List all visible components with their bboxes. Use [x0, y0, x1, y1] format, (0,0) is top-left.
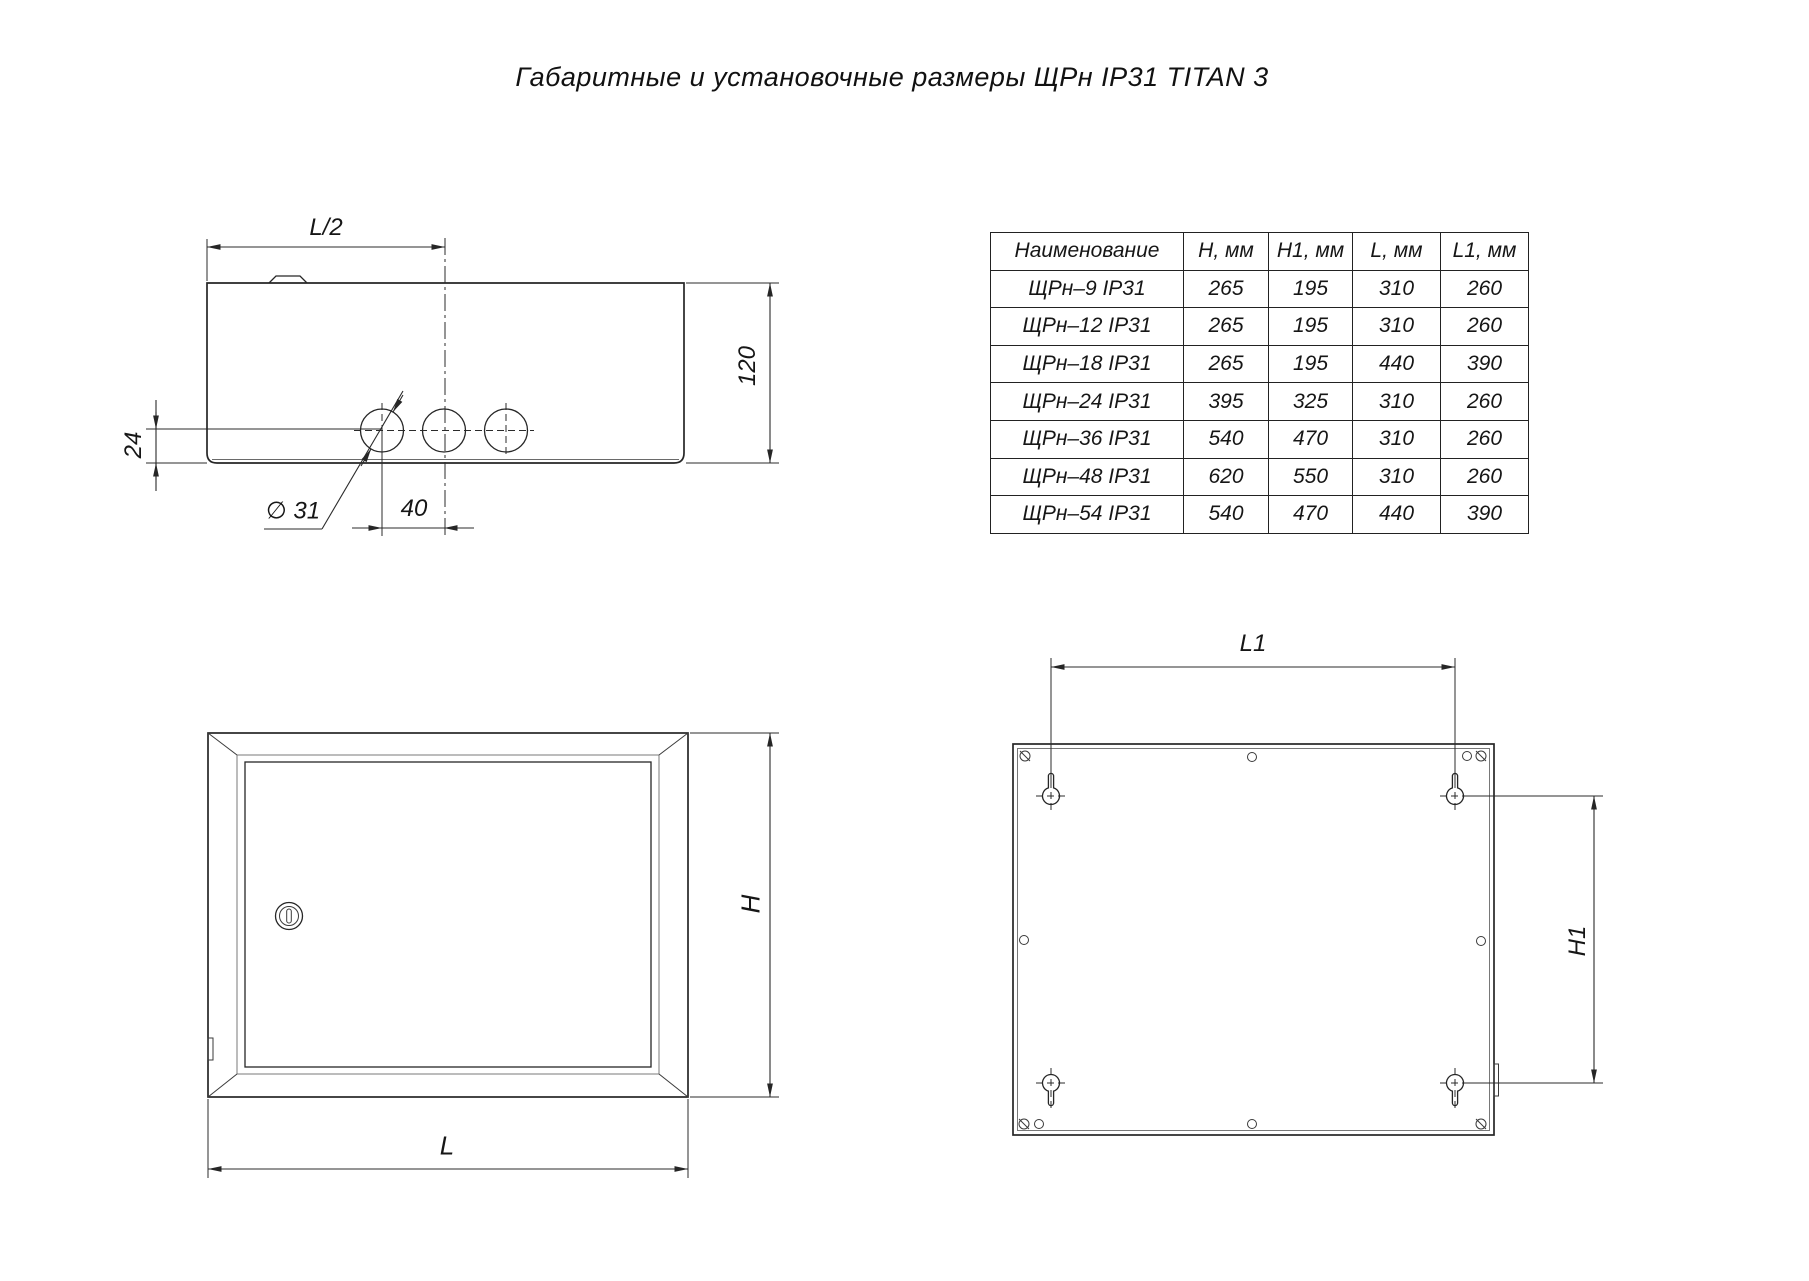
- latch-bump: [269, 276, 307, 283]
- value-h: 540: [1184, 420, 1269, 458]
- value-h: 620: [1184, 458, 1269, 496]
- back-view: [1013, 658, 1603, 1135]
- value-l1: 390: [1441, 345, 1529, 383]
- dim-label-depth: 120: [734, 346, 762, 386]
- value-h: 265: [1184, 308, 1269, 346]
- value-h: 265: [1184, 270, 1269, 308]
- value-h1: 550: [1269, 458, 1353, 496]
- vent-hole: [1463, 752, 1472, 761]
- col-header-name: Наименование: [991, 233, 1184, 271]
- lock-keyway: [287, 909, 292, 923]
- vent-hole: [1248, 753, 1257, 762]
- table-header-row: Наименование H, мм H1, мм L, мм L1, мм: [991, 233, 1529, 271]
- model-name: ЩРн–54 IP31: [991, 496, 1184, 534]
- table-row: ЩРн–18 IP31 265 195 440 390: [991, 345, 1529, 383]
- value-h1: 325: [1269, 383, 1353, 421]
- model-name: ЩРн–36 IP31: [991, 420, 1184, 458]
- value-h1: 470: [1269, 420, 1353, 458]
- front-view: [208, 733, 779, 1178]
- value-l: 310: [1353, 383, 1441, 421]
- value-l: 310: [1353, 420, 1441, 458]
- col-header-l1: L1, мм: [1441, 233, 1529, 271]
- value-l1: 390: [1441, 496, 1529, 534]
- vent-hole: [1020, 936, 1029, 945]
- value-l1: 260: [1441, 270, 1529, 308]
- value-h: 395: [1184, 383, 1269, 421]
- table-row: ЩРн–54 IP31 540 470 440 390: [991, 496, 1529, 534]
- model-name: ЩРн–48 IP31: [991, 458, 1184, 496]
- dim-label-height: H: [736, 895, 767, 914]
- value-l: 440: [1353, 496, 1441, 534]
- value-h: 265: [1184, 345, 1269, 383]
- dim-label-hole-offset: 24: [120, 432, 148, 459]
- model-name: ЩРн–12 IP31: [991, 308, 1184, 346]
- table-row: ЩРн–24 IP31 395 325 310 260: [991, 383, 1529, 421]
- table-row: ЩРн–36 IP31 540 470 310 260: [991, 420, 1529, 458]
- diameter-leader: [322, 391, 403, 529]
- table-row: ЩРн–48 IP31 620 550 310 260: [991, 458, 1529, 496]
- top-view: [146, 238, 779, 536]
- vent-hole: [1248, 1120, 1257, 1129]
- value-l: 310: [1353, 308, 1441, 346]
- dim-label-hole-spacing: 40: [401, 495, 428, 523]
- table-row: ЩРн–9 IP31 265 195 310 260: [991, 270, 1529, 308]
- value-l: 440: [1353, 345, 1441, 383]
- col-header-l: L, мм: [1353, 233, 1441, 271]
- value-l: 310: [1353, 458, 1441, 496]
- value-h1: 195: [1269, 345, 1353, 383]
- vent-hole: [1035, 1120, 1044, 1129]
- dim-label-width: L: [440, 1131, 454, 1162]
- dim-label-mount-height: H1: [1564, 926, 1592, 957]
- model-name: ЩРн–24 IP31: [991, 383, 1184, 421]
- door-panel: [245, 762, 651, 1067]
- value-l: 310: [1353, 270, 1441, 308]
- technical-drawing: [0, 0, 1809, 1281]
- value-l1: 260: [1441, 383, 1529, 421]
- dim-label-hole-diameter: ∅ 31: [266, 497, 320, 526]
- value-h1: 195: [1269, 270, 1353, 308]
- enclosure-back-outline: [1013, 744, 1494, 1135]
- model-name: ЩРн–18 IP31: [991, 345, 1184, 383]
- dim-label-mount-width: L1: [1240, 630, 1267, 658]
- value-l1: 260: [1441, 420, 1529, 458]
- value-l1: 260: [1441, 458, 1529, 496]
- col-header-h1: H1, мм: [1269, 233, 1353, 271]
- table-row: ЩРн–12 IP31 265 195 310 260: [991, 308, 1529, 346]
- dimensions-table: Наименование H, мм H1, мм L, мм L1, мм Щ…: [990, 232, 1529, 534]
- vent-hole: [1477, 937, 1486, 946]
- col-header-h: H, мм: [1184, 233, 1269, 271]
- value-h1: 195: [1269, 308, 1353, 346]
- dim-label-l-half: L/2: [309, 214, 342, 242]
- model-name: ЩРн–9 IP31: [991, 270, 1184, 308]
- value-h1: 470: [1269, 496, 1353, 534]
- corner-screw: [1019, 751, 1486, 1129]
- value-h: 540: [1184, 496, 1269, 534]
- drawing-canvas: Габаритные и установочные размеры ЩРн IP…: [0, 0, 1809, 1281]
- value-l1: 260: [1441, 308, 1529, 346]
